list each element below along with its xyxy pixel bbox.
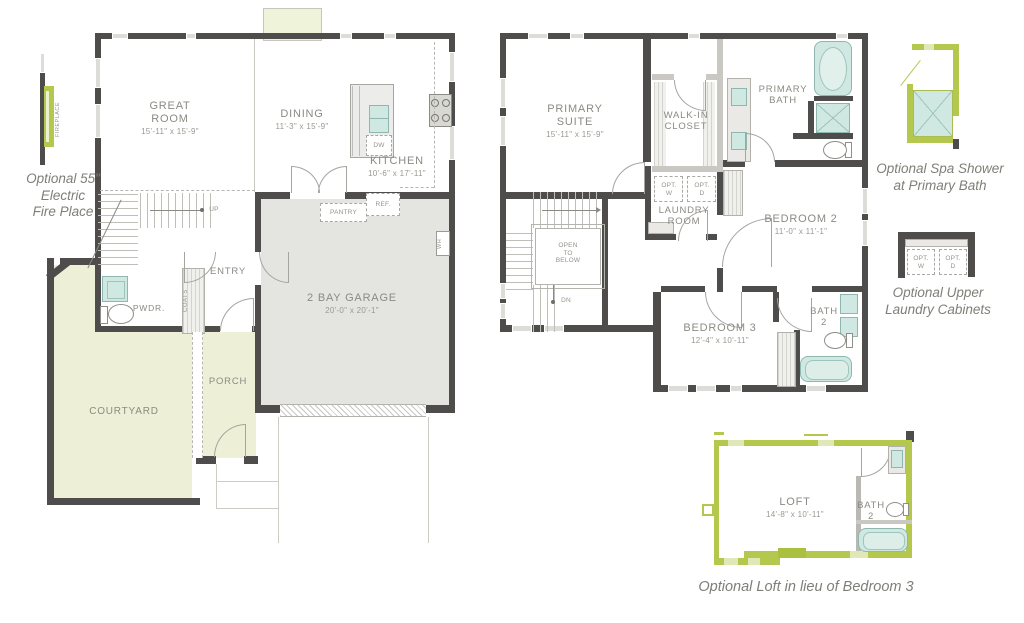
loft-window bbox=[818, 440, 834, 446]
toilet-tank bbox=[903, 503, 909, 516]
loft-wall-top bbox=[716, 440, 912, 446]
loft-caption: Optional Loft in lieu of Bedroom 3 bbox=[648, 579, 964, 596]
loft-window bbox=[850, 551, 868, 558]
loft-bath-sink bbox=[891, 450, 903, 468]
loft-wall-tick bbox=[714, 432, 724, 435]
loft-bath2-label: BATH 2 bbox=[855, 500, 887, 522]
loft-window bbox=[724, 558, 738, 565]
loft-window bbox=[748, 558, 760, 565]
loft-wall-bottom bbox=[744, 551, 912, 558]
loft-option: LOFT 14'-8" x 10'-11" BATH 2 Optional Lo… bbox=[0, 0, 1024, 623]
loft-bath-tub-basin bbox=[863, 532, 905, 550]
loft-wall-left bbox=[714, 440, 719, 565]
loft-window-bump bbox=[702, 504, 714, 516]
loft-wall-step bbox=[778, 548, 806, 558]
toilet-bowl bbox=[886, 502, 904, 517]
loft-bath-door bbox=[861, 448, 891, 477]
loft-window bbox=[728, 440, 744, 446]
floorplan-sheet: UP DW REF. PANTRY WH bbox=[0, 0, 1024, 623]
loft-label: LOFT 14'-8" x 10'-11" bbox=[745, 496, 845, 520]
loft-wall-tick bbox=[804, 434, 828, 436]
